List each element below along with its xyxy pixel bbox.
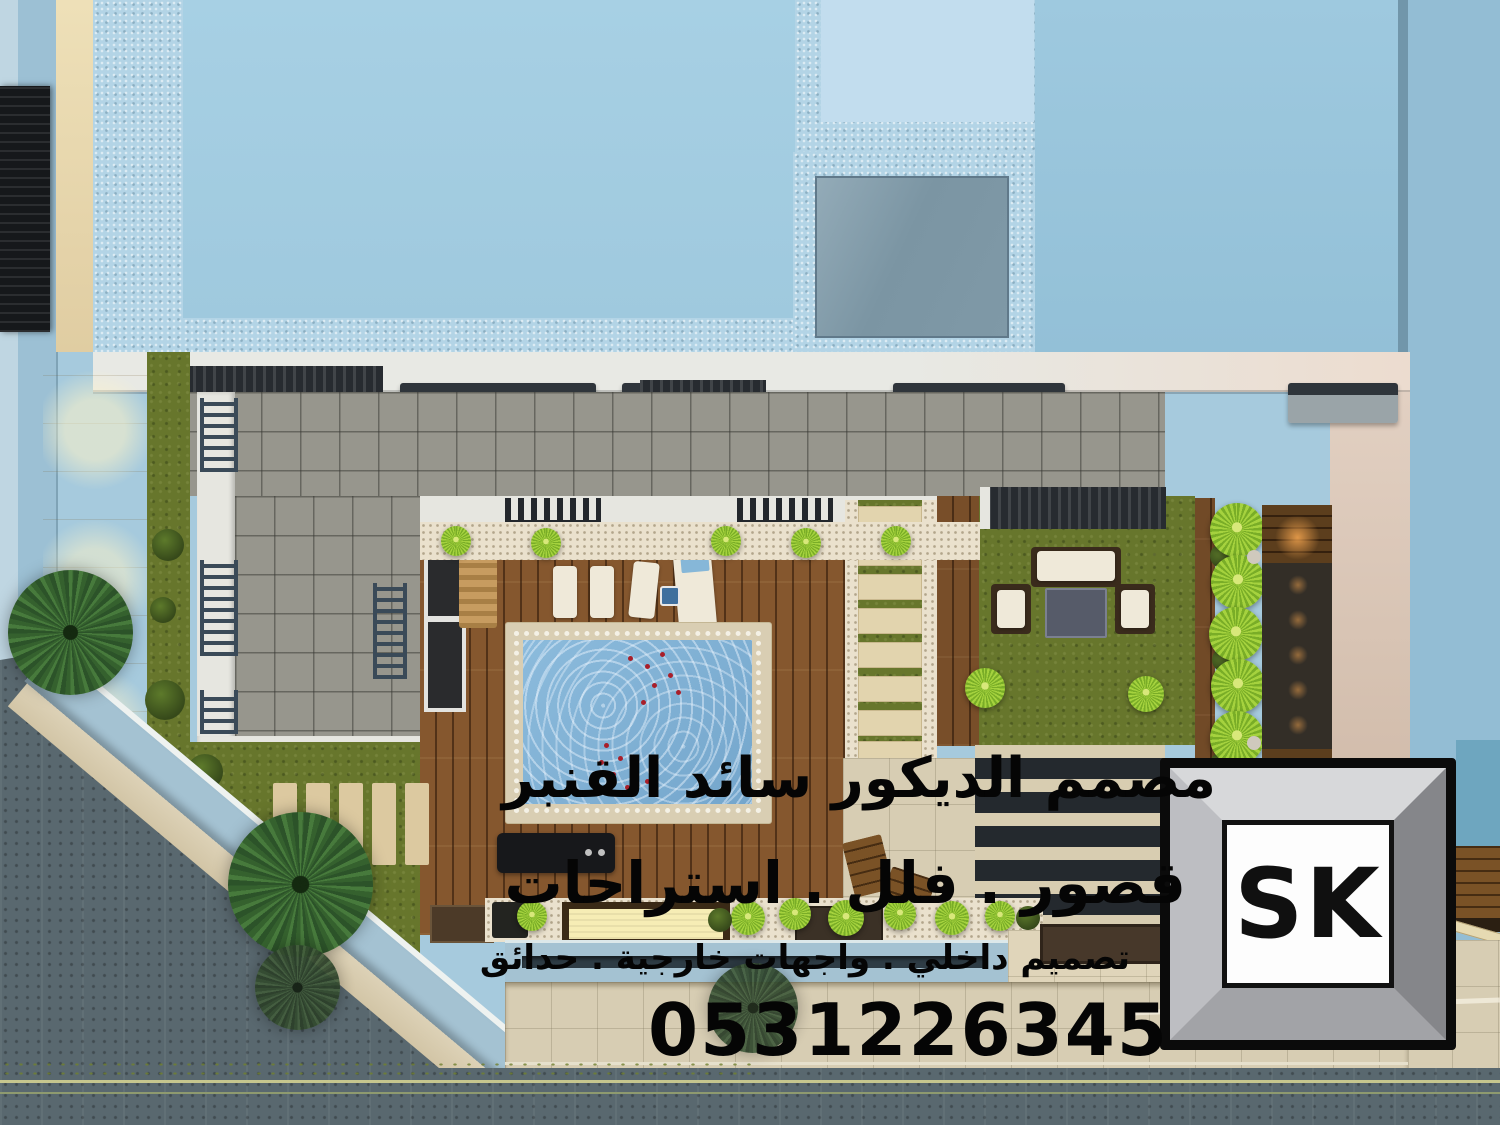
sun-lounger [590,566,614,618]
side-table [660,586,680,606]
palm-tree [8,570,133,695]
tile-canopy-topleft [183,366,383,392]
terrace-top-walkway [183,392,1165,496]
armchair-cushion [997,590,1025,628]
scallop-light [1288,610,1308,630]
palm-tree [255,945,340,1030]
garden-bush [150,597,176,623]
stepping-slab [405,783,429,865]
lawn-plant [1128,676,1164,712]
stepping-slab [858,710,922,736]
roof-main-right [1035,0,1398,352]
left-entrance-tile-canopy [0,86,50,332]
palm-tree [228,812,373,957]
border-plant [1211,659,1265,713]
stone-ball [1247,550,1261,564]
planter-tuft [531,528,561,558]
watermark-services-line: قصور . فلل . استراحات [606,852,1186,916]
roof-tower-inner [821,0,1034,122]
flower-petal [645,664,650,669]
coffee-table [1045,588,1107,638]
stepping-slab [372,783,396,865]
scallop-light [1288,715,1308,735]
flower-petal [641,700,646,705]
right-pavement [1452,940,1500,1068]
border-plant [1209,607,1263,661]
planter-tuft [881,526,911,556]
planter-tuft [711,526,741,556]
garden-bush [152,529,184,561]
terrace-railing [373,583,407,679]
terrace-railing [200,690,238,734]
scallop-light [1288,680,1308,700]
moss-speckles [0,1060,760,1078]
flower-petal [660,652,665,657]
left-lit-walkway-sliver [56,0,93,352]
sofa-cushion [1037,551,1115,581]
roof-crest-ornament [505,498,601,525]
villa-aerial-render: SK مصمم الديكور سائد القنبر قصور . فلل .… [0,0,1500,1125]
sun-lounger [553,566,577,618]
right-deep-blue-wall [1456,740,1500,846]
terrace-railing [200,560,238,656]
stepping-slab [858,574,922,600]
stepping-slab [858,608,922,634]
skylight-well-shaft [815,176,1009,338]
flower-petal [652,683,657,688]
wall-light-glow [1275,515,1320,560]
armchair-cushion [1121,590,1149,628]
wooden-bench [459,556,497,628]
canopy-post [980,487,990,529]
lawn-plant [965,668,1005,708]
planter-tuft [791,528,821,558]
roof-crest-ornament [737,498,833,525]
border-plant [1210,503,1264,557]
sk-logo-text: SK [1222,820,1394,988]
watermark-designer-name: مصمم الديكور سائد القنبر [596,748,1216,810]
flower-petal [676,690,681,695]
lane-line [0,1080,1500,1083]
window-awning-unit [1288,383,1398,423]
stone-ball [1247,736,1261,750]
planter-tuft [441,526,471,556]
garden-bush [145,680,185,720]
deck-cabinet [424,618,466,712]
scallop-light [1288,575,1308,595]
right-bench-deck [1456,846,1500,918]
roof-left-frame-bottom [183,318,800,352]
stepping-slab [858,642,922,668]
scallop-light [1288,645,1308,665]
lawn-tile-canopy [988,487,1166,529]
watermark-specialties-line: تصميم داخلي . واجهات خارجية . حدائق [610,940,1130,977]
terrace-railing [200,398,238,472]
stepping-slab [858,676,922,702]
lane-line [0,1092,1500,1094]
flower-petal [628,656,633,661]
flower-petal [668,673,673,678]
roof-main-left [183,0,800,318]
roof-left-parapet-frame [93,0,183,352]
watermark-phone-number: 0531226345 [648,988,1128,1072]
